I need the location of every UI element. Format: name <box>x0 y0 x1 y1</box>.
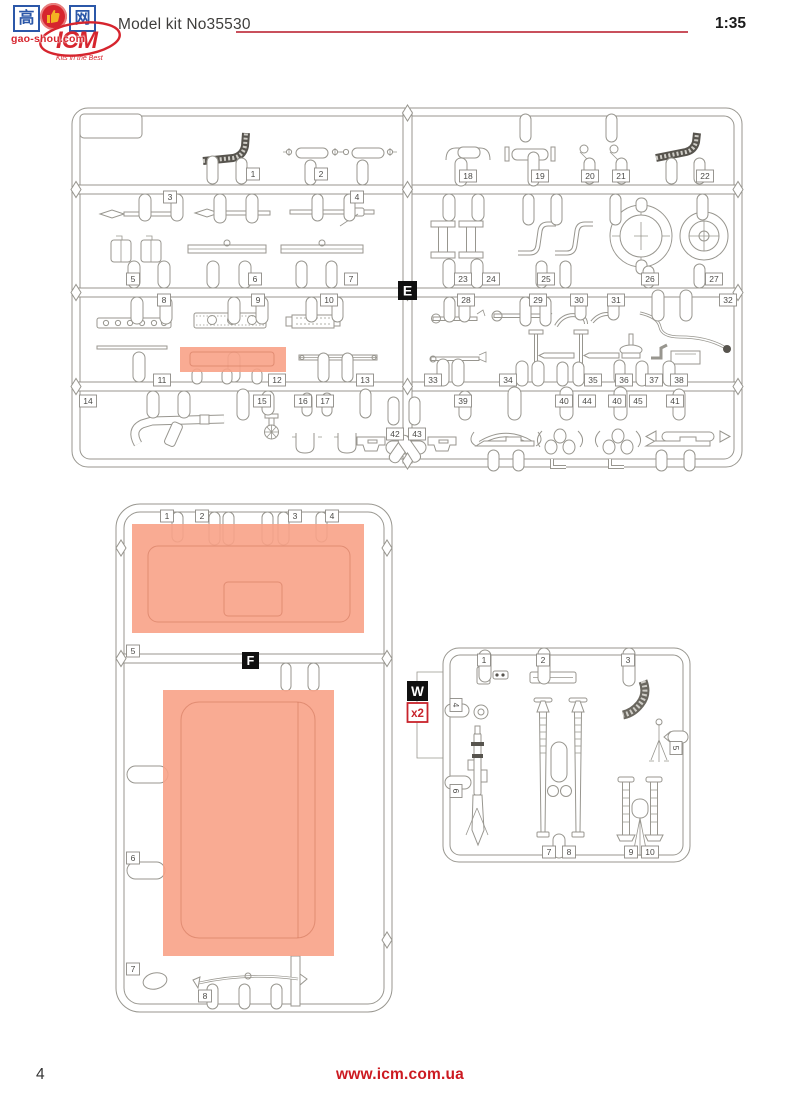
part-label: 42 <box>387 428 404 440</box>
svg-text:10: 10 <box>645 847 655 857</box>
part-label: 27 <box>706 273 723 285</box>
svg-text:31: 31 <box>611 295 621 305</box>
sprue-letter-w: W <box>407 681 428 701</box>
svg-text:1: 1 <box>251 169 256 179</box>
svg-text:40: 40 <box>612 396 622 406</box>
part-label: 6 <box>127 852 140 864</box>
svg-text:44: 44 <box>582 396 592 406</box>
svg-text:21: 21 <box>616 171 626 181</box>
part-label: 1 <box>247 168 260 180</box>
part-label: 26 <box>642 273 659 285</box>
website-url: www.icm.com.ua <box>0 1066 800 1084</box>
svg-text:43: 43 <box>412 429 422 439</box>
unused-parts-highlight <box>163 690 334 956</box>
svg-text:34: 34 <box>503 375 513 385</box>
svg-text:11: 11 <box>158 375 167 385</box>
svg-text:41: 41 <box>670 396 680 406</box>
part-label: 33 <box>425 374 442 386</box>
part-label: 20 <box>582 170 599 182</box>
part-label: 37 <box>646 374 663 386</box>
svg-text:17: 17 <box>320 396 330 406</box>
part-label: 15 <box>254 395 271 407</box>
part-label: 3 <box>622 654 635 666</box>
part-label: 11 <box>154 374 171 386</box>
part-label: 10 <box>642 846 659 858</box>
part-label: 8 <box>158 294 171 306</box>
part-label: 6 <box>249 273 262 285</box>
svg-text:5: 5 <box>131 646 136 656</box>
sprue-letter-w-text: W <box>411 684 424 699</box>
svg-text:12: 12 <box>272 375 282 385</box>
part-label: 19 <box>532 170 549 182</box>
part-label: 2 <box>315 168 328 180</box>
sprue-e-highlight <box>180 347 286 372</box>
svg-text:19: 19 <box>535 171 545 181</box>
part-label: 21 <box>613 170 630 182</box>
svg-text:5: 5 <box>671 746 681 751</box>
svg-text:4: 4 <box>451 703 461 708</box>
svg-text:10: 10 <box>324 295 334 305</box>
part-label: 6 <box>450 785 462 798</box>
svg-text:8: 8 <box>203 991 208 1001</box>
svg-text:7: 7 <box>349 274 354 284</box>
sprue-letter-f: F <box>242 652 259 669</box>
part-label: 4 <box>326 510 339 522</box>
sprue-w: 12345678910 W x2 <box>407 648 690 862</box>
svg-text:1: 1 <box>165 511 170 521</box>
part-label: 34 <box>500 374 517 386</box>
part-label: 1 <box>478 654 491 666</box>
svg-text:5: 5 <box>131 274 136 284</box>
part-label: 5 <box>670 742 682 755</box>
sprue-w-multiplier: x2 <box>408 703 428 722</box>
part-label: 5 <box>127 273 140 285</box>
svg-text:13: 13 <box>360 375 370 385</box>
svg-text:37: 37 <box>649 375 659 385</box>
part-label: 28 <box>458 294 475 306</box>
part-label: 4 <box>351 191 364 203</box>
part-label: 44 <box>579 395 596 407</box>
svg-text:14: 14 <box>83 396 93 406</box>
svg-text:3: 3 <box>168 192 173 202</box>
part-label: 40 <box>609 395 626 407</box>
part-label: 45 <box>630 395 647 407</box>
part-label: 16 <box>295 395 312 407</box>
part-label: 9 <box>252 294 265 306</box>
part-label: 30 <box>571 294 588 306</box>
part-label: 3 <box>289 510 302 522</box>
svg-text:2: 2 <box>319 169 324 179</box>
svg-text:45: 45 <box>633 396 643 406</box>
svg-text:28: 28 <box>461 295 471 305</box>
svg-text:30: 30 <box>574 295 584 305</box>
svg-text:9: 9 <box>256 295 261 305</box>
part-label: 18 <box>460 170 477 182</box>
part-label: 23 <box>455 273 472 285</box>
svg-text:8: 8 <box>567 847 572 857</box>
part-label: 5 <box>127 645 140 657</box>
part-label: 24 <box>483 273 500 285</box>
svg-text:39: 39 <box>458 396 468 406</box>
svg-text:27: 27 <box>709 274 719 284</box>
part-label: 2 <box>196 510 209 522</box>
part-label: 10 <box>321 294 338 306</box>
svg-text:6: 6 <box>451 789 461 794</box>
svg-text:26: 26 <box>645 274 655 284</box>
part-label: 8 <box>563 846 576 858</box>
sprue-e: 1234567891011121314151617181920212223242… <box>71 105 743 471</box>
svg-text:29: 29 <box>533 295 543 305</box>
part-label: 17 <box>317 395 334 407</box>
svg-text:2: 2 <box>200 511 205 521</box>
svg-text:3: 3 <box>293 511 298 521</box>
part-label: 14 <box>80 395 97 407</box>
svg-text:25: 25 <box>541 274 551 284</box>
svg-text:1: 1 <box>482 655 487 665</box>
part-label: 31 <box>608 294 625 306</box>
part-label: 29 <box>530 294 547 306</box>
part-label: 3 <box>164 191 177 203</box>
svg-text:15: 15 <box>257 396 267 406</box>
part-label: 4 <box>450 699 462 712</box>
svg-text:16: 16 <box>298 396 308 406</box>
part-label: 38 <box>671 374 688 386</box>
svg-text:33: 33 <box>428 375 438 385</box>
sprue-f-highlight <box>132 524 364 956</box>
svg-text:22: 22 <box>700 171 710 181</box>
svg-text:20: 20 <box>585 171 595 181</box>
part-label: 41 <box>667 395 684 407</box>
sprue-w-multiplier-text: x2 <box>411 708 424 720</box>
svg-text:35: 35 <box>588 375 598 385</box>
svg-text:8: 8 <box>162 295 167 305</box>
sprue-diagram: 1234567891011121314151617181920212223242… <box>0 0 800 1104</box>
part-label: 13 <box>357 374 374 386</box>
part-label: 9 <box>625 846 638 858</box>
sprue-f: 12345678 F <box>116 504 392 1012</box>
svg-text:38: 38 <box>674 375 684 385</box>
sprue-letter-e-text: E <box>403 283 412 299</box>
part-label: 12 <box>269 374 286 386</box>
part-label: 39 <box>455 395 472 407</box>
unused-parts-highlight <box>180 347 286 372</box>
svg-text:7: 7 <box>547 847 552 857</box>
part-label: 1 <box>161 510 174 522</box>
part-label: 8 <box>199 990 212 1002</box>
unused-parts-highlight <box>132 524 364 633</box>
part-label: 32 <box>720 294 737 306</box>
part-label: 36 <box>616 374 633 386</box>
svg-text:36: 36 <box>619 375 629 385</box>
svg-text:32: 32 <box>723 295 733 305</box>
part-label: 22 <box>697 170 714 182</box>
part-label: 7 <box>345 273 358 285</box>
svg-text:6: 6 <box>131 853 136 863</box>
part-label: 7 <box>127 963 140 975</box>
svg-text:2: 2 <box>541 655 546 665</box>
svg-text:9: 9 <box>629 847 634 857</box>
sprue-letter-e: E <box>398 281 417 300</box>
part-label: 7 <box>543 846 556 858</box>
sprue-letter-f-text: F <box>247 654 255 668</box>
svg-text:7: 7 <box>131 964 136 974</box>
part-label: 25 <box>538 273 555 285</box>
svg-text:3: 3 <box>626 655 631 665</box>
part-label: 43 <box>409 428 426 440</box>
svg-text:4: 4 <box>330 511 335 521</box>
svg-text:40: 40 <box>559 396 569 406</box>
svg-text:4: 4 <box>355 192 360 202</box>
part-label: 35 <box>585 374 602 386</box>
instruction-page: 高 网 ICM Kits in the Best gao-shou.com Mo… <box>0 0 800 1104</box>
svg-text:42: 42 <box>390 429 400 439</box>
svg-text:24: 24 <box>486 274 496 284</box>
svg-text:6: 6 <box>253 274 258 284</box>
part-label: 2 <box>537 654 550 666</box>
part-label: 40 <box>556 395 573 407</box>
svg-text:23: 23 <box>458 274 468 284</box>
svg-text:18: 18 <box>463 171 473 181</box>
